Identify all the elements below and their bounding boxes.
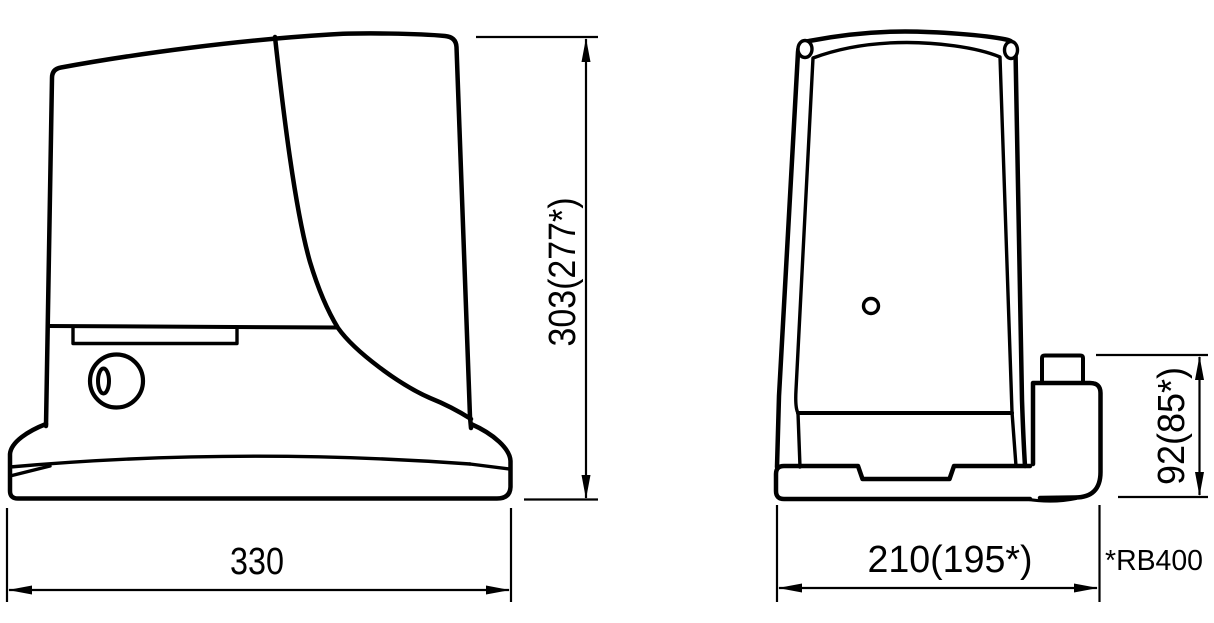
side-view xyxy=(10,33,511,498)
variant-footnote: *RB400 xyxy=(1105,545,1203,577)
dimension-rear-height: 92(85*) xyxy=(1096,355,1208,497)
front-body-outline xyxy=(777,32,1025,468)
side-handle-slot xyxy=(73,327,237,344)
side-base-top-edge xyxy=(10,456,470,467)
arrow-right-icon xyxy=(486,586,510,595)
arrow-right-icon xyxy=(1074,584,1098,593)
front-corner-left xyxy=(798,41,812,58)
rear-housing-fill xyxy=(1033,383,1101,498)
dimension-front-width: 210(195*) xyxy=(777,505,1100,602)
front-corner-right xyxy=(1005,42,1018,59)
front-inner-contour xyxy=(796,43,1016,468)
arrow-down-icon xyxy=(582,475,591,499)
side-cover-seam xyxy=(275,37,471,419)
arrow-up-icon xyxy=(1195,356,1204,380)
front-view xyxy=(776,32,1101,502)
arrow-left-icon xyxy=(778,584,802,593)
front-base-plate xyxy=(776,466,1030,499)
technical-drawing-page: 303(277*) 330 210(195*) 92(85 xyxy=(0,0,1214,623)
rear-height-label: 92(85*) xyxy=(1151,367,1193,485)
front-width-label: 210(195*) xyxy=(868,539,1033,581)
arrow-down-icon xyxy=(1195,472,1204,496)
dimension-side-width: 330 xyxy=(7,508,511,602)
rear-housing-cap xyxy=(1042,356,1083,384)
side-height-label: 303(277*) xyxy=(542,198,584,347)
side-body-outline xyxy=(46,33,471,428)
gearmotor-dimension-drawing: 303(277*) 330 210(195*) 92(85 xyxy=(0,0,1214,623)
side-base-top-edge-right xyxy=(470,464,509,469)
arrow-up-icon xyxy=(582,38,591,62)
front-screw-hole-icon xyxy=(864,299,879,314)
dimension-side-height: 303(277*) xyxy=(476,37,598,500)
arrow-left-icon xyxy=(8,586,32,595)
side-width-label: 330 xyxy=(230,541,284,583)
side-cover-split-line xyxy=(48,326,338,328)
release-keyhole-icon xyxy=(98,369,109,394)
